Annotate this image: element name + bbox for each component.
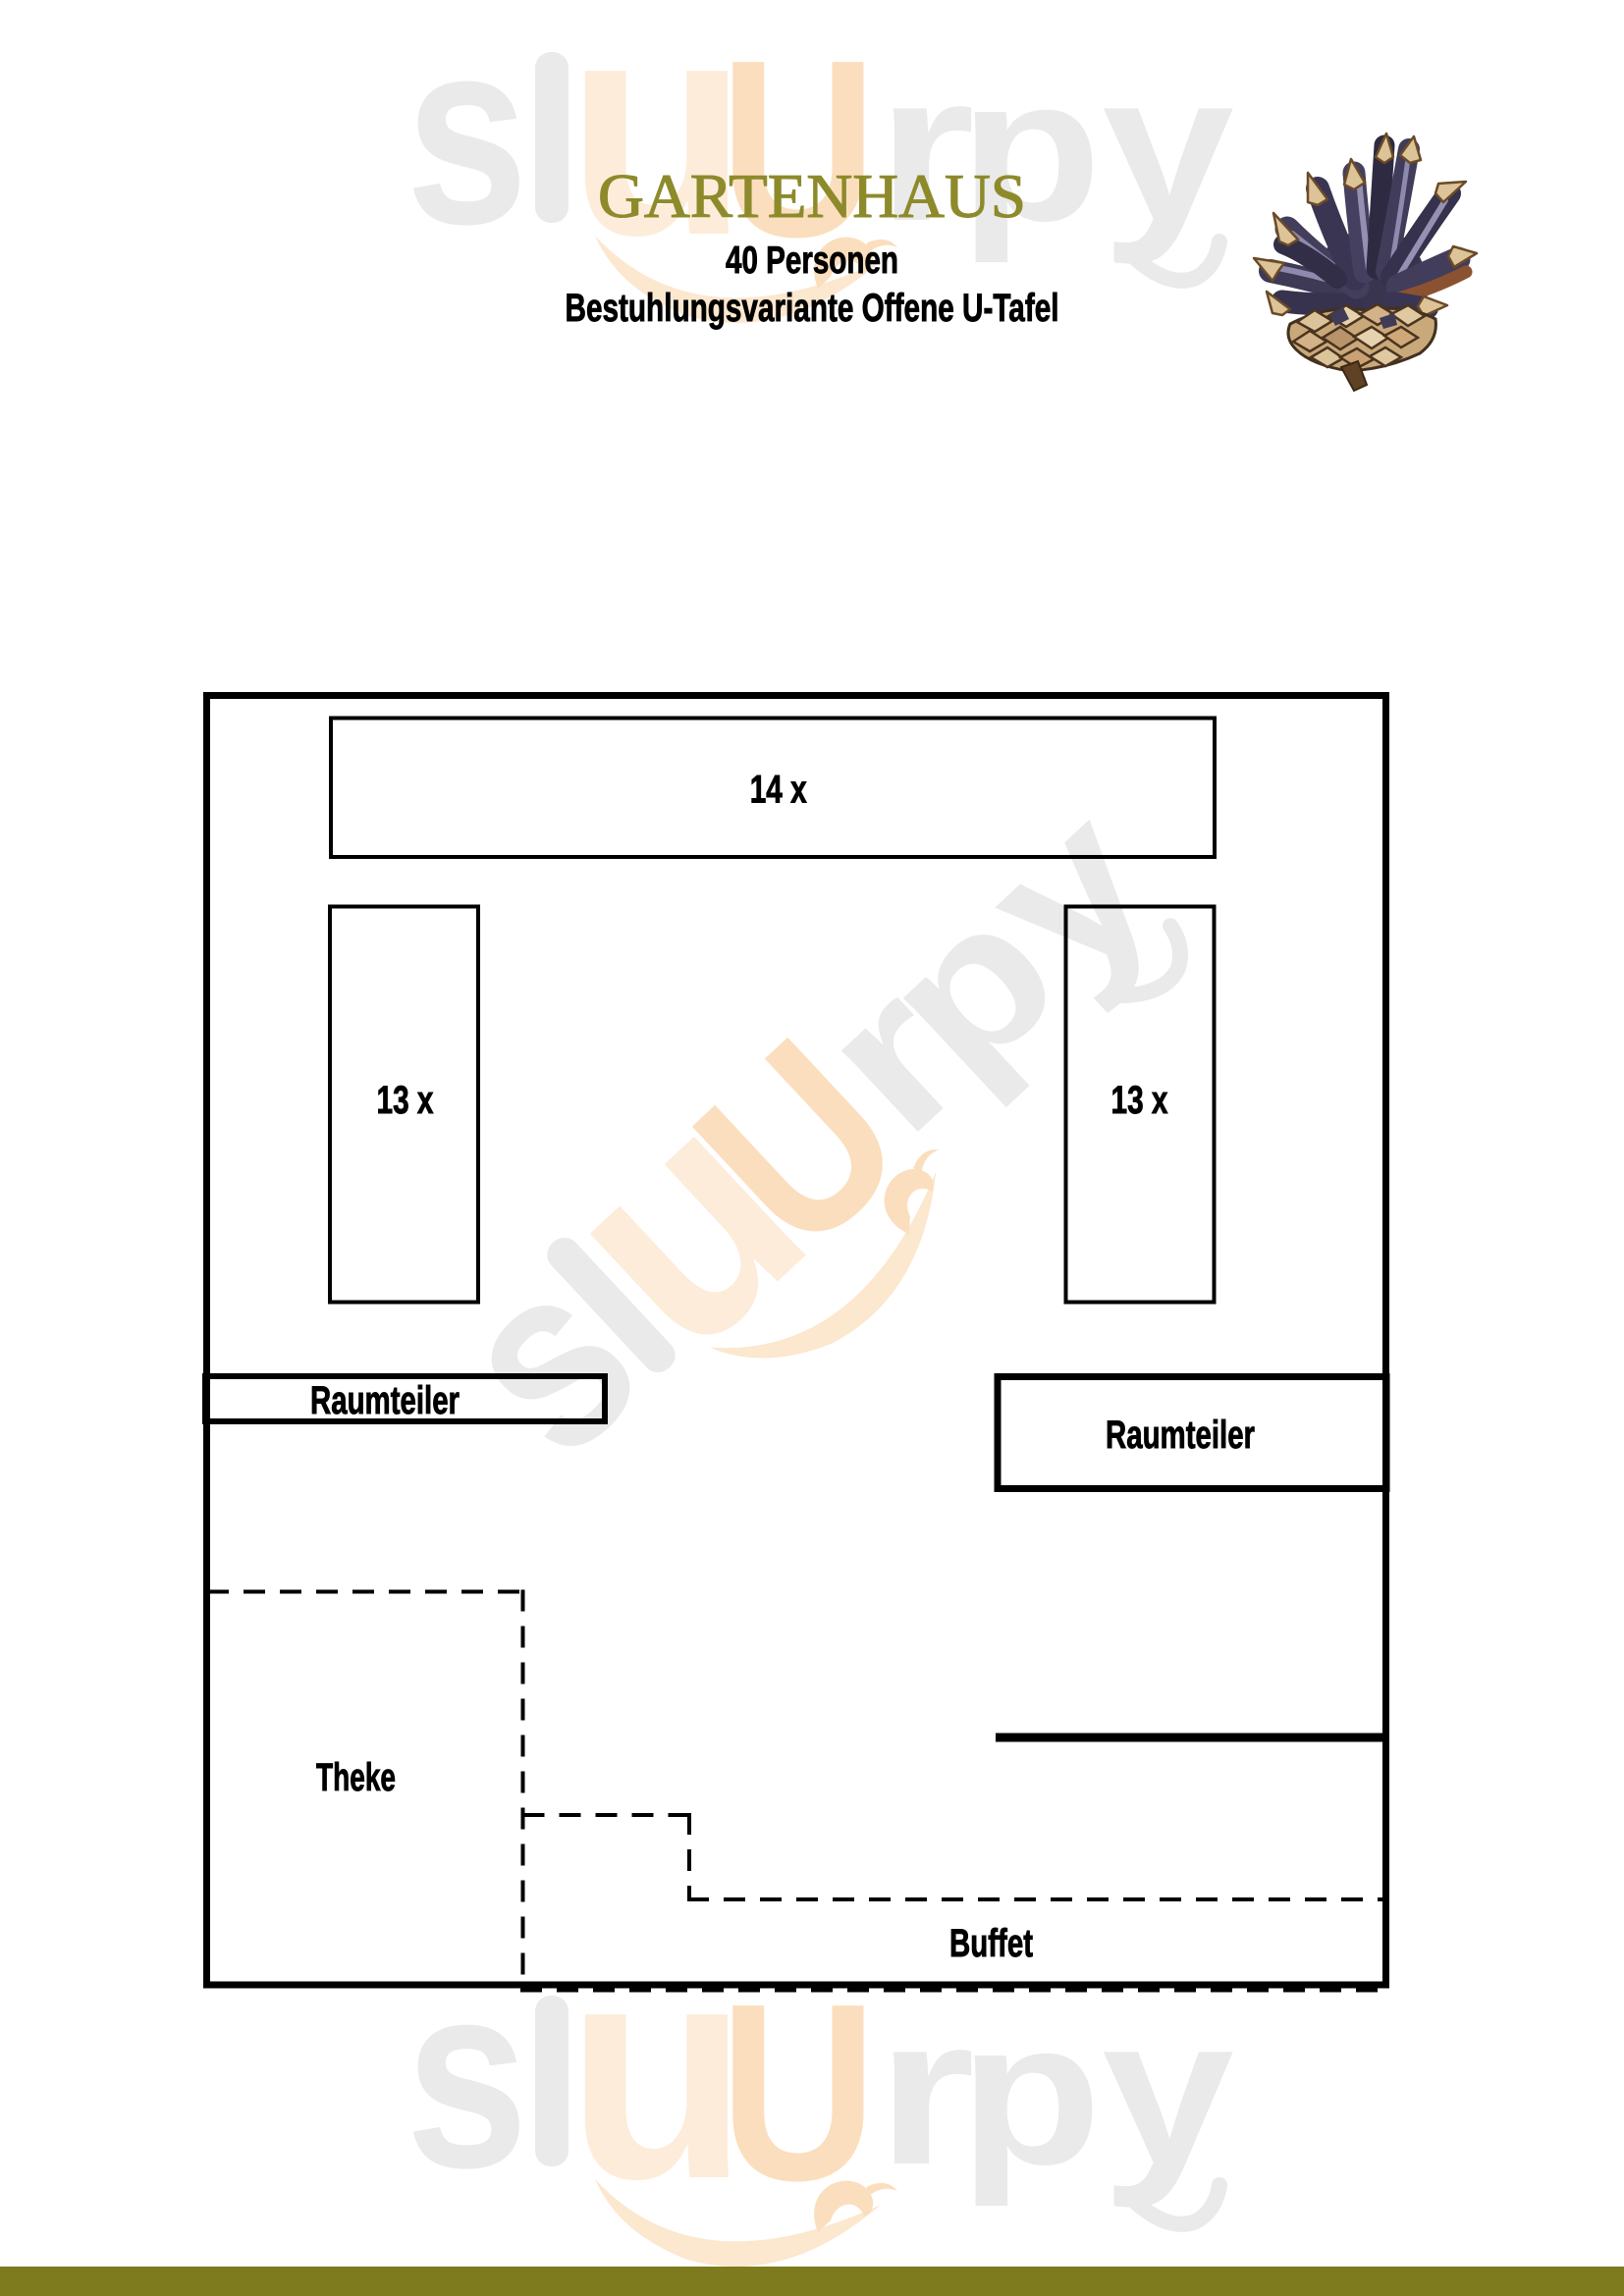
svg-text:Buffet: Buffet bbox=[949, 1922, 1033, 1965]
svg-text:40 Personen: 40 Personen bbox=[726, 240, 898, 282]
svg-text:Theke: Theke bbox=[316, 1756, 396, 1799]
svg-text:Raumteiler: Raumteiler bbox=[1106, 1414, 1255, 1457]
svg-text:Bestuhlungsvariante Offene U-T: Bestuhlungsvariante Offene U-Tafel bbox=[566, 287, 1059, 330]
svg-text:GARTENHAUS: GARTENHAUS bbox=[598, 162, 1026, 231]
svg-text:Raumteiler: Raumteiler bbox=[310, 1379, 460, 1422]
svg-text:13 x: 13 x bbox=[377, 1079, 434, 1122]
svg-text:14 x: 14 x bbox=[750, 769, 807, 812]
svg-text:13 x: 13 x bbox=[1111, 1079, 1168, 1122]
